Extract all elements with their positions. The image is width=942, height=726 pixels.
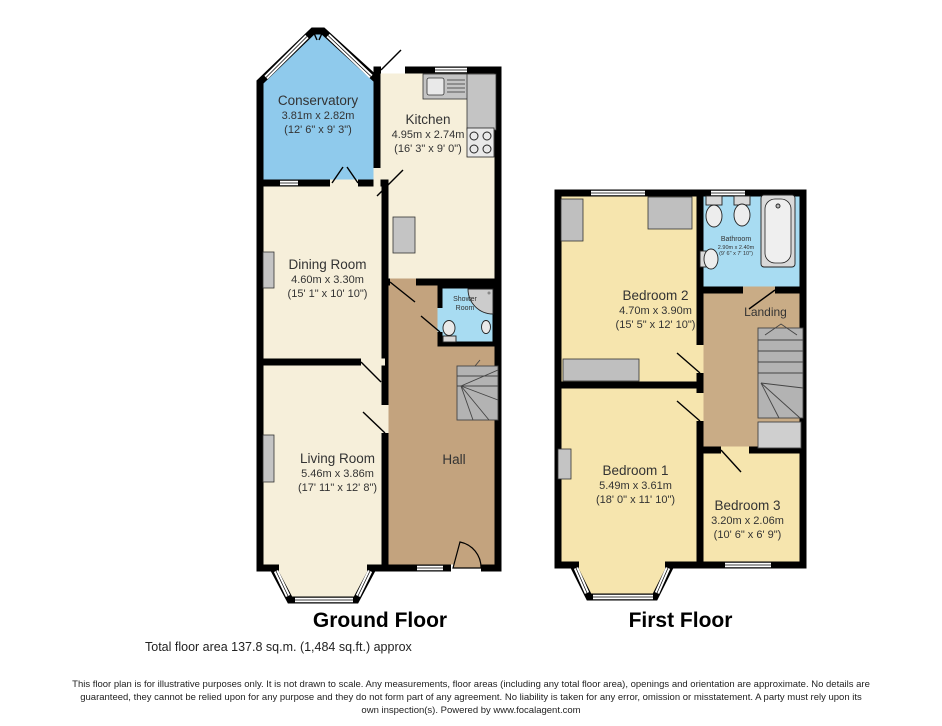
floorplan-page: Conservatory 3.81m x 2.82m (12' 6" x 9' … (0, 0, 942, 726)
kitchen-sink-unit (423, 74, 469, 99)
shower-toilet (443, 321, 456, 343)
bathroom-toilet-2 (700, 249, 718, 269)
bedroom1-room (558, 385, 700, 597)
kitchen-counter (467, 74, 496, 130)
bedroom3-room (700, 450, 803, 565)
ground-floor-title: Ground Floor (255, 609, 505, 633)
first-floor-title: First Floor (553, 609, 808, 633)
bathroom-toilet (706, 196, 722, 227)
chimney-breast (558, 449, 571, 479)
ground-floor-plan (255, 20, 505, 615)
staircase (758, 324, 803, 448)
disclaimer-text: This floor plan is for illustrative purp… (71, 679, 871, 717)
bathtub (761, 195, 795, 267)
shower-basin (482, 321, 491, 334)
kitchen-unit (393, 217, 415, 253)
conservatory-room (260, 31, 377, 183)
bathroom-basin (734, 196, 750, 226)
staircase (457, 360, 498, 420)
living-room (260, 362, 385, 600)
bay-opening (579, 561, 665, 569)
kitchen-hob (467, 128, 494, 157)
bay-opening (279, 564, 367, 572)
total-floor-area: Total floor area 137.8 sq.m. (1,484 sq.f… (145, 640, 412, 654)
first-floor-plan (553, 183, 808, 613)
dining-room (260, 183, 385, 362)
